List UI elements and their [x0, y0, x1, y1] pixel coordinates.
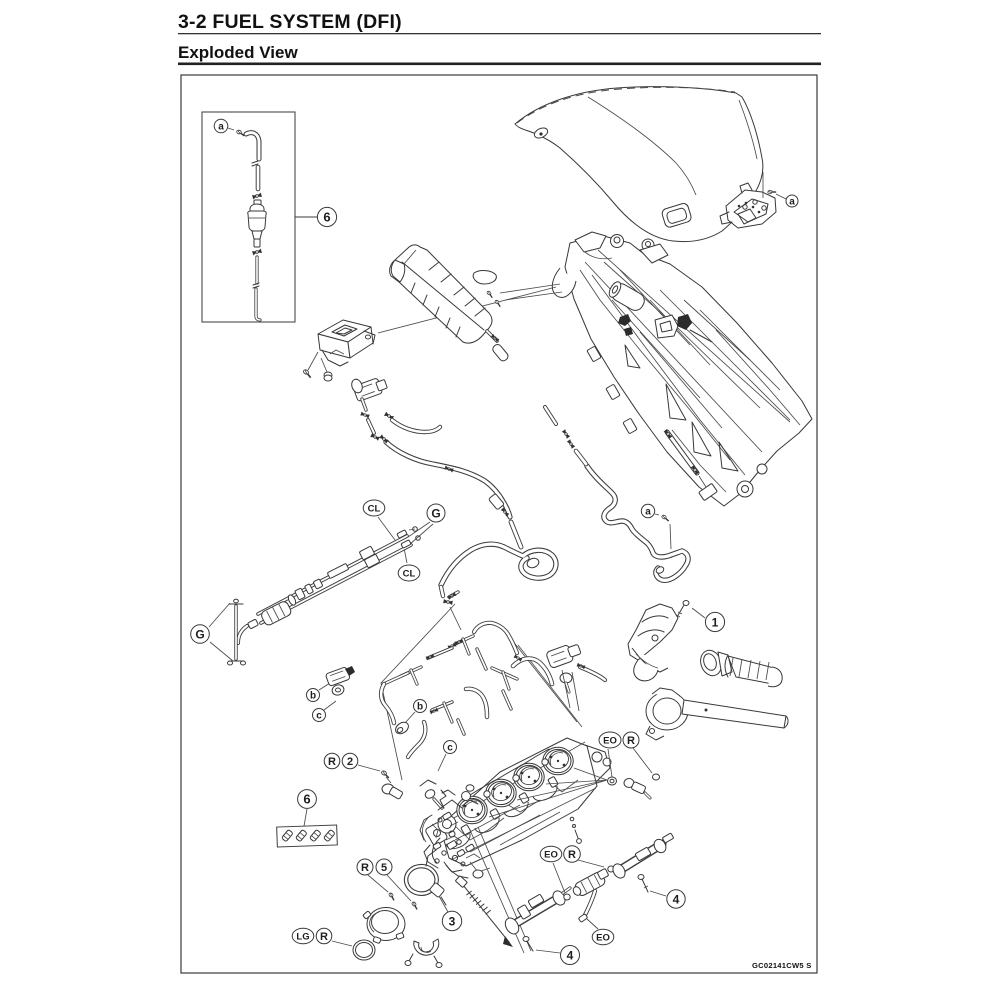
- svg-text:4: 4: [567, 948, 574, 962]
- svg-text:EO: EO: [596, 932, 610, 943]
- svg-text:LG: LG: [296, 931, 309, 942]
- svg-text:CL: CL: [368, 503, 381, 514]
- svg-text:6: 6: [303, 792, 310, 807]
- svg-text:4: 4: [673, 892, 680, 906]
- svg-text:G: G: [431, 506, 440, 520]
- svg-text:R: R: [320, 931, 328, 943]
- svg-text:2: 2: [347, 756, 353, 768]
- svg-text:EO: EO: [603, 735, 617, 746]
- svg-text:1: 1: [712, 615, 719, 629]
- svg-text:G: G: [195, 627, 204, 641]
- svg-text:a: a: [645, 507, 651, 518]
- svg-text:b: b: [417, 702, 423, 713]
- svg-text:a: a: [789, 197, 795, 208]
- svg-text:3: 3: [449, 914, 456, 928]
- svg-text:R: R: [361, 862, 369, 874]
- svg-text:Exploded View: Exploded View: [178, 43, 298, 62]
- svg-text:3-2 FUEL SYSTEM (DFI): 3-2 FUEL SYSTEM (DFI): [178, 11, 402, 33]
- svg-text:a: a: [218, 122, 224, 133]
- svg-text:R: R: [328, 756, 336, 768]
- svg-text:b: b: [310, 691, 316, 702]
- svg-text:R: R: [627, 735, 635, 747]
- svg-text:GC02141CW5 S: GC02141CW5 S: [752, 961, 812, 970]
- svg-text:c: c: [447, 743, 453, 754]
- svg-text:CL: CL: [403, 568, 416, 579]
- svg-text:c: c: [316, 711, 322, 722]
- svg-text:6: 6: [323, 210, 330, 225]
- svg-text:5: 5: [381, 862, 387, 874]
- svg-text:R: R: [568, 849, 576, 861]
- svg-text:EO: EO: [544, 849, 558, 860]
